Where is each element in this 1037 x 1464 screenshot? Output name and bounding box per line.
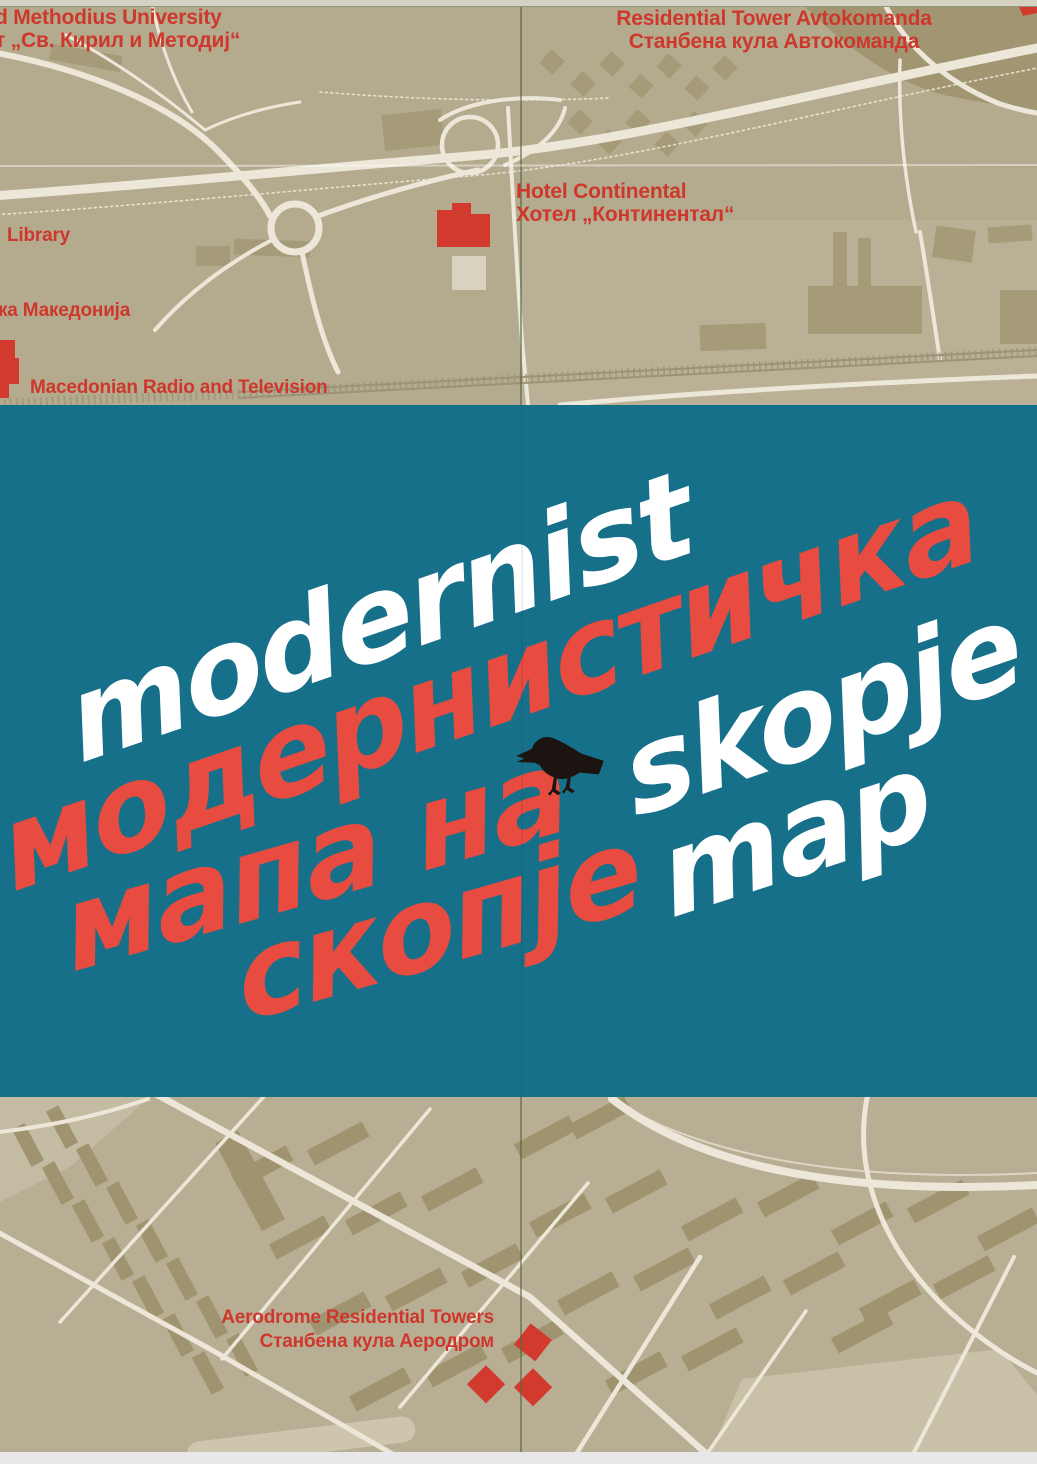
label-hotel-en: Hotel Continental bbox=[516, 180, 734, 203]
bottom-edge-strip bbox=[0, 1452, 1037, 1464]
label-aerodrome-mk: Станбена кула Аеродром bbox=[160, 1330, 494, 1354]
label-avtokomanda-en: Residential Tower Avtokomanda bbox=[600, 7, 948, 30]
label-university-mk: т „Св. Кирил и Методиј“ bbox=[0, 29, 240, 52]
label-library: Library bbox=[7, 225, 70, 247]
label-university-en: d Methodius University bbox=[0, 6, 240, 29]
label-university: d Methodius University т „Св. Кирил и Ме… bbox=[0, 6, 240, 52]
label-avtokomanda: Residential Tower Avtokomanda Станбена к… bbox=[600, 7, 948, 53]
label-mrt: Macedonian Radio and Television bbox=[30, 377, 328, 399]
label-hotel-mk: Хотел „Континентал“ bbox=[516, 203, 734, 226]
crow-icon bbox=[513, 730, 607, 800]
top-edge-strip bbox=[0, 0, 1037, 7]
label-makedonija: ка Македонија bbox=[0, 300, 130, 322]
title-panel: modernist модернистичка skopje мапа на m… bbox=[0, 405, 1037, 1097]
label-avtokomanda-mk: Станбена кула Автокоманда bbox=[600, 30, 948, 53]
fold-crease-title bbox=[521, 405, 523, 1097]
bottom-map-art bbox=[0, 1097, 1037, 1464]
map-cover: d Methodius University т „Св. Кирил и Ме… bbox=[0, 0, 1037, 1464]
bottom-map-panel: Aerodrome Residential Towers Станбена ку… bbox=[0, 1097, 1037, 1464]
label-aerodrome-en: Aerodrome Residential Towers bbox=[160, 1306, 494, 1330]
top-map-panel: d Methodius University т „Св. Кирил и Ме… bbox=[0, 0, 1037, 405]
label-aerodrome: Aerodrome Residential Towers Станбена ку… bbox=[160, 1306, 494, 1354]
light-building bbox=[452, 256, 486, 290]
label-hotel: Hotel Continental Хотел „Континентал“ bbox=[516, 180, 734, 226]
fold-crease-horizontal bbox=[0, 165, 1037, 166]
